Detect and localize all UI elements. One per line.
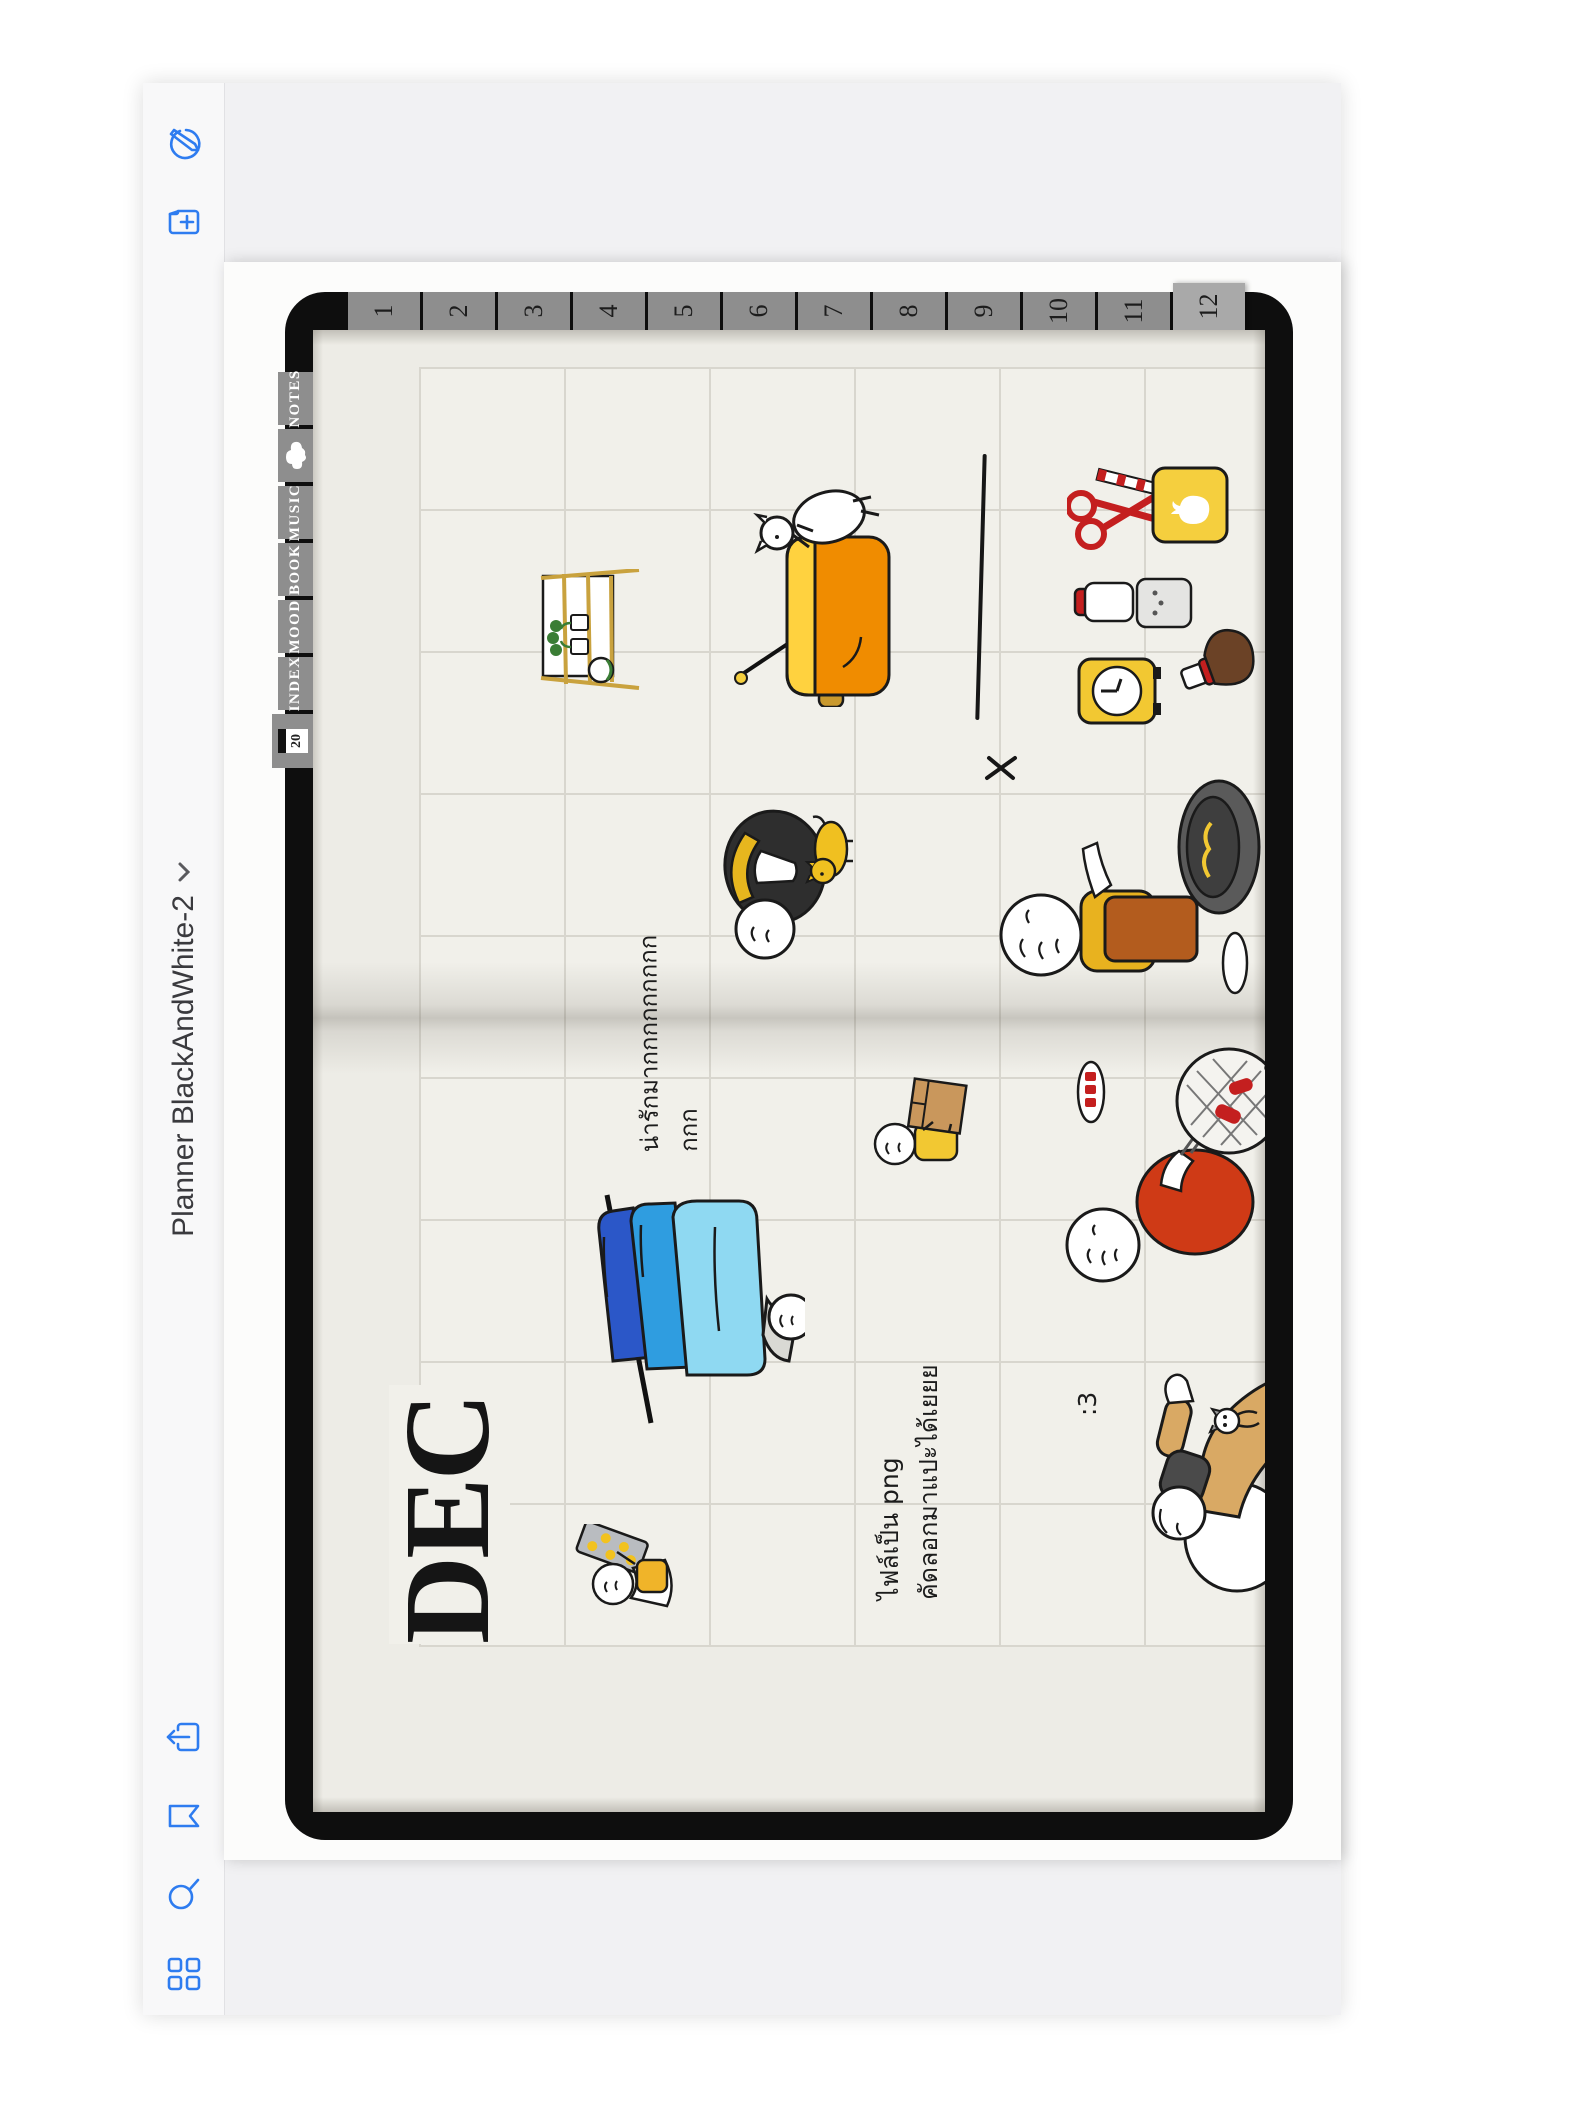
add-page-icon[interactable] <box>163 201 205 243</box>
document-page: 1 2 3 4 5 6 7 8 9 10 11 12 <box>224 262 1341 1860</box>
month-title: DEC <box>389 1385 510 1644</box>
month-tab-3[interactable]: 3 <box>498 292 570 330</box>
file-note-line2: คัดลอกมาแปะได้เยยย <box>910 1340 949 1600</box>
bbq-grill-person-sticker <box>1061 1047 1265 1297</box>
tab-index[interactable]: INDEX <box>278 657 313 710</box>
date-badge-bar <box>278 729 286 753</box>
folded-jeans-stack-sticker <box>585 1192 805 1427</box>
box-carrier-person-sticker <box>853 1074 993 1174</box>
goat-on-pot-sticker <box>733 482 895 707</box>
date-tab[interactable]: 20 <box>272 714 313 768</box>
cloud-icon <box>284 439 308 473</box>
page-edge-shadow-left <box>313 1797 1265 1812</box>
month-tab-11[interactable]: 11 <box>1098 292 1170 330</box>
month-tab-8[interactable]: 8 <box>873 292 945 330</box>
app-window: Planner BlackAndWhite-2 1 2 3 <box>143 83 1341 2015</box>
month-tab-9[interactable]: 9 <box>948 292 1020 330</box>
cheese-tray-person-sticker <box>571 1524 686 1614</box>
month-tab-12-active[interactable]: 12 <box>1173 283 1245 330</box>
scissors-pencil-cup-sticker <box>1067 455 1235 570</box>
month-tab-4[interactable]: 4 <box>573 292 645 330</box>
month-tab-bar: 1 2 3 4 5 6 7 8 9 10 11 12 <box>348 292 1245 330</box>
top-tab-bar: 20 INDEX MOOD BOOK MUSIC NOTES <box>272 372 313 768</box>
date-badge-number: 20 <box>286 729 308 753</box>
plant-shelf-sticker <box>539 569 641 694</box>
toolbar-right-group <box>143 123 224 243</box>
black-suit-person-with-dog-sticker <box>699 797 859 967</box>
month-tab-7[interactable]: 7 <box>798 292 870 330</box>
sack-with-cat-person-sticker <box>1141 1357 1265 1607</box>
rotated-app-stage: Planner BlackAndWhite-2 1 2 3 <box>0 0 1577 2102</box>
cooking-person-with-pot-sticker <box>983 772 1265 997</box>
month-tab-10[interactable]: 10 <box>1023 292 1095 330</box>
month-tab-5[interactable]: 5 <box>648 292 720 330</box>
tab-music[interactable]: MUSIC <box>278 486 313 539</box>
handwriting-cute-note: น่ารักมากกกกกกกกกกกก <box>628 892 708 1153</box>
date-badge-icon: 20 <box>278 729 308 753</box>
page-edge-shadow-right <box>313 330 1265 345</box>
pen-mode-icon[interactable] <box>163 123 205 165</box>
handwriting-file-note: ไฟล์เป็น png คัดลอกมาแปะได้เยยย <box>871 1340 949 1600</box>
tab-notes[interactable]: NOTES <box>278 372 313 425</box>
tab-book[interactable]: BOOK <box>278 543 313 596</box>
chevron-down-icon <box>177 861 191 883</box>
tab-cloud-sticker[interactable] <box>278 429 313 482</box>
toolbar: Planner BlackAndWhite-2 <box>143 83 225 2015</box>
month-tab-2[interactable]: 2 <box>423 292 495 330</box>
planner-notebook: 1 2 3 4 5 6 7 8 9 10 11 12 <box>285 292 1293 1840</box>
tab-mood[interactable]: MOOD <box>278 600 313 653</box>
file-note-line1: ไฟล์เป็น png <box>871 1340 910 1600</box>
handwriting-emoticon: :3 <box>1073 1392 1102 1416</box>
planner-spread: DEC น่ารักมากกกกกกกกกกกก ไฟล์เป็น png คั… <box>313 330 1265 1812</box>
document-title[interactable]: Planner BlackAndWhite-2 <box>143 83 224 2015</box>
kitchen-timer-and-jars-sticker <box>1069 567 1265 727</box>
month-tab-1[interactable]: 1 <box>348 292 420 330</box>
document-title-text: Planner BlackAndWhite-2 <box>167 895 201 1237</box>
month-tab-6[interactable]: 6 <box>723 292 795 330</box>
